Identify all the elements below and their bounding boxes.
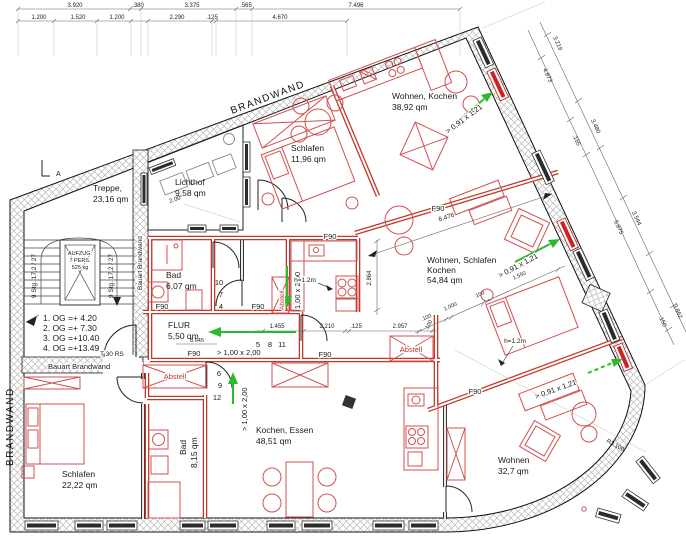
door-arc [213, 242, 239, 268]
dim: 3.480 [589, 119, 601, 136]
window-symbol [180, 521, 205, 530]
level-line: 4. OG =+13.49 [43, 343, 100, 353]
room-area-bad-mid: 6,07 qm [166, 281, 197, 291]
window-symbol [373, 521, 404, 530]
arrow-icon [208, 327, 221, 337]
floor-plan-drawing: AUFZUG: 7 PERS. 525 kg 9 Stg. 17,2 / 27 … [0, 0, 686, 546]
brandwand-label-left: BRANDWAND [5, 387, 16, 466]
dining-table [286, 462, 313, 517]
dim: .100 [473, 290, 485, 300]
dim: 6.476 [438, 212, 456, 224]
door-number: 5 [256, 340, 260, 349]
dim: .380 [132, 3, 144, 9]
dim: 2.210 [319, 324, 335, 330]
room-label-kochen-essen: Kochen, Essen [256, 425, 313, 435]
window-symbol [409, 521, 438, 530]
dim: 7.496 [348, 3, 364, 9]
arrow-icon [548, 239, 560, 248]
f90-label: F90 [156, 302, 169, 311]
dim: 3.920 [67, 3, 83, 9]
room-label-bad-mid: Bad [166, 270, 181, 280]
side-table [342, 395, 356, 409]
dim: .125 [350, 324, 362, 330]
escape-arrows: > 0,91 x 1,21 > 0,91 x 1,21 > 0,91 x 1,2… [208, 92, 623, 431]
room-area-lichthof: 9,58 qm [175, 188, 206, 198]
dimension-lines: 3.920 .380 3.375 .565 7.496 1.200 1.520 … [16, 2, 686, 453]
nightstand [262, 193, 274, 205]
f90-label: F90 [324, 232, 337, 241]
bauart-brandwand-horizontal: Bauart Brandwand [48, 362, 110, 371]
f90-label: F90 [252, 302, 265, 311]
dim: 1.455 [269, 324, 285, 330]
parapet-note: h=1.2m [504, 338, 526, 345]
dim: 4.873 [541, 68, 553, 85]
door-size-note: > 1,00 x 2,00 [240, 387, 249, 431]
level-line: 1. OG =+ 4.20 [43, 313, 97, 323]
abstell-label: Abstell [400, 345, 423, 354]
dim: 3.544 [630, 211, 642, 228]
room-area-wohnen-br: 32,7 qm [498, 466, 529, 476]
door-number: 12 [213, 393, 221, 402]
room-label-treppe: Treppe, [93, 183, 122, 193]
dim: 1.000 [443, 302, 458, 313]
window-symbol [208, 521, 238, 530]
door-arc [446, 486, 472, 512]
door-number: 10 [215, 278, 223, 287]
chair [318, 468, 336, 486]
room-label-bad-bottom: Bad [178, 440, 188, 455]
bed [26, 404, 84, 464]
section-marker [42, 160, 50, 176]
room-area-wohnen-kochen: 38,92 qm [392, 102, 427, 112]
room-label-wohnen-kochen: Wohnen, Kochen [392, 91, 457, 101]
elevator-label: 7 PERS. [69, 258, 91, 264]
chair [263, 468, 281, 486]
armchair [400, 122, 448, 170]
room-area-schlafen-bl: 22,22 qm [62, 480, 97, 490]
dim: 2.957 [392, 324, 408, 330]
elevator-label: 525 kg [72, 265, 89, 271]
window-symbol [188, 225, 206, 232]
table-round [305, 109, 331, 135]
dim: .165 [571, 134, 582, 148]
wardrobe [272, 363, 328, 387]
door-size-note: > 1,00 x 2,00 [217, 348, 261, 357]
floor-plan: AUFZUG: 7 PERS. 525 kg 9 Stg. 17,2 / 27 … [0, 0, 686, 546]
door-number: 7 [219, 290, 223, 299]
door-number: 9 [218, 381, 222, 390]
dim: .565 [240, 3, 252, 9]
f90-label: F90 [432, 204, 445, 213]
stair-flight-label: 9 Stg. 17,2 / 27 [31, 254, 38, 298]
room-label-wsk-1: Wohnen, Schlafen [427, 255, 497, 265]
window-symbol [75, 521, 103, 530]
door-number: 11 [278, 340, 286, 349]
wardrobe [24, 377, 80, 389]
dim: 1.200 [31, 15, 47, 21]
window-symbol [302, 521, 332, 530]
abstell-label: Abstell [279, 290, 286, 310]
room-area-bad-bottom: 8,15 qm [189, 437, 199, 468]
window-symbol [107, 521, 137, 530]
dim: 2.290 [169, 15, 185, 21]
planter-round [224, 134, 235, 145]
window-symbol [596, 508, 622, 523]
window-symbol [622, 489, 649, 511]
dot [582, 507, 586, 511]
bauart-brandwand-vertical: Bauart Brandwand [137, 236, 144, 290]
door-number: 4 [219, 302, 223, 311]
level-line: 3. OG =+10.40 [43, 333, 100, 343]
room-label-schlafen-bl: Schlafen [62, 469, 95, 479]
room-label-schlafen-top: Schlafen [291, 143, 324, 153]
chair [445, 71, 467, 93]
door-label-t30rs: T 30 RS [100, 351, 124, 358]
parapet-note: h=1.2m [294, 277, 316, 284]
room-label-lichthof: Lichthof [175, 177, 205, 187]
dim: 1.520 [70, 15, 86, 21]
chair [318, 494, 336, 512]
window-symbol [141, 173, 147, 205]
dim: 6.875 [612, 220, 624, 237]
abstell-label: Abstell [164, 372, 187, 381]
section-marker-label: A [56, 171, 61, 178]
window-symbol [243, 142, 250, 172]
room-area-flur: 5,50 qm [168, 331, 199, 341]
room-area-treppe: 23,16 qm [93, 194, 128, 204]
dim: 3.862 [671, 304, 683, 321]
f90-label: F90 [469, 387, 482, 396]
chair [581, 426, 597, 442]
chair [263, 494, 281, 512]
window-symbol [149, 159, 176, 175]
room-label-wohnen-br: Wohnen [498, 455, 530, 465]
bed [486, 277, 578, 355]
bed [261, 127, 355, 209]
wardrobe [447, 428, 465, 480]
door-gap [115, 362, 143, 375]
window-size-note: > 0,91 x 1,21 [534, 378, 578, 401]
window-symbol [636, 456, 660, 484]
level-line: 2. OG =+ 7.30 [43, 323, 97, 333]
stair-flight-label: 9 Stg. 17,2 / 27 [108, 254, 115, 298]
sofa [519, 372, 587, 425]
room-label-flur: FLUR [168, 320, 190, 330]
dim: 4.670 [272, 15, 288, 21]
door-number: 6 [217, 369, 221, 378]
window-symbol [243, 177, 250, 207]
nightstand [346, 197, 358, 209]
arrow-icon [228, 372, 238, 384]
bathroom-fixtures [148, 430, 180, 518]
elevator-label: AUFZUG: [68, 251, 93, 257]
window-symbol [220, 225, 238, 232]
door-arc [117, 377, 143, 403]
window-symbol [267, 521, 295, 530]
room-area-kochen-essen: 48,51 qm [256, 436, 291, 446]
room-label-wsk-2: Kochen [427, 265, 456, 275]
f90-label: F90 [319, 350, 332, 359]
dim: 1.200 [109, 15, 125, 21]
window-symbol [25, 521, 58, 530]
dim: 2.864 [367, 270, 373, 286]
room-area-wsk: 54,84 qm [427, 275, 462, 285]
room-area-schlafen-top: 11,96 qm [291, 154, 326, 164]
dim: .125 [206, 15, 218, 21]
dim: 3.375 [184, 3, 200, 9]
door-number: 8 [268, 340, 272, 349]
f90-label: F90 [188, 349, 201, 358]
kitchen-counter [404, 388, 438, 470]
